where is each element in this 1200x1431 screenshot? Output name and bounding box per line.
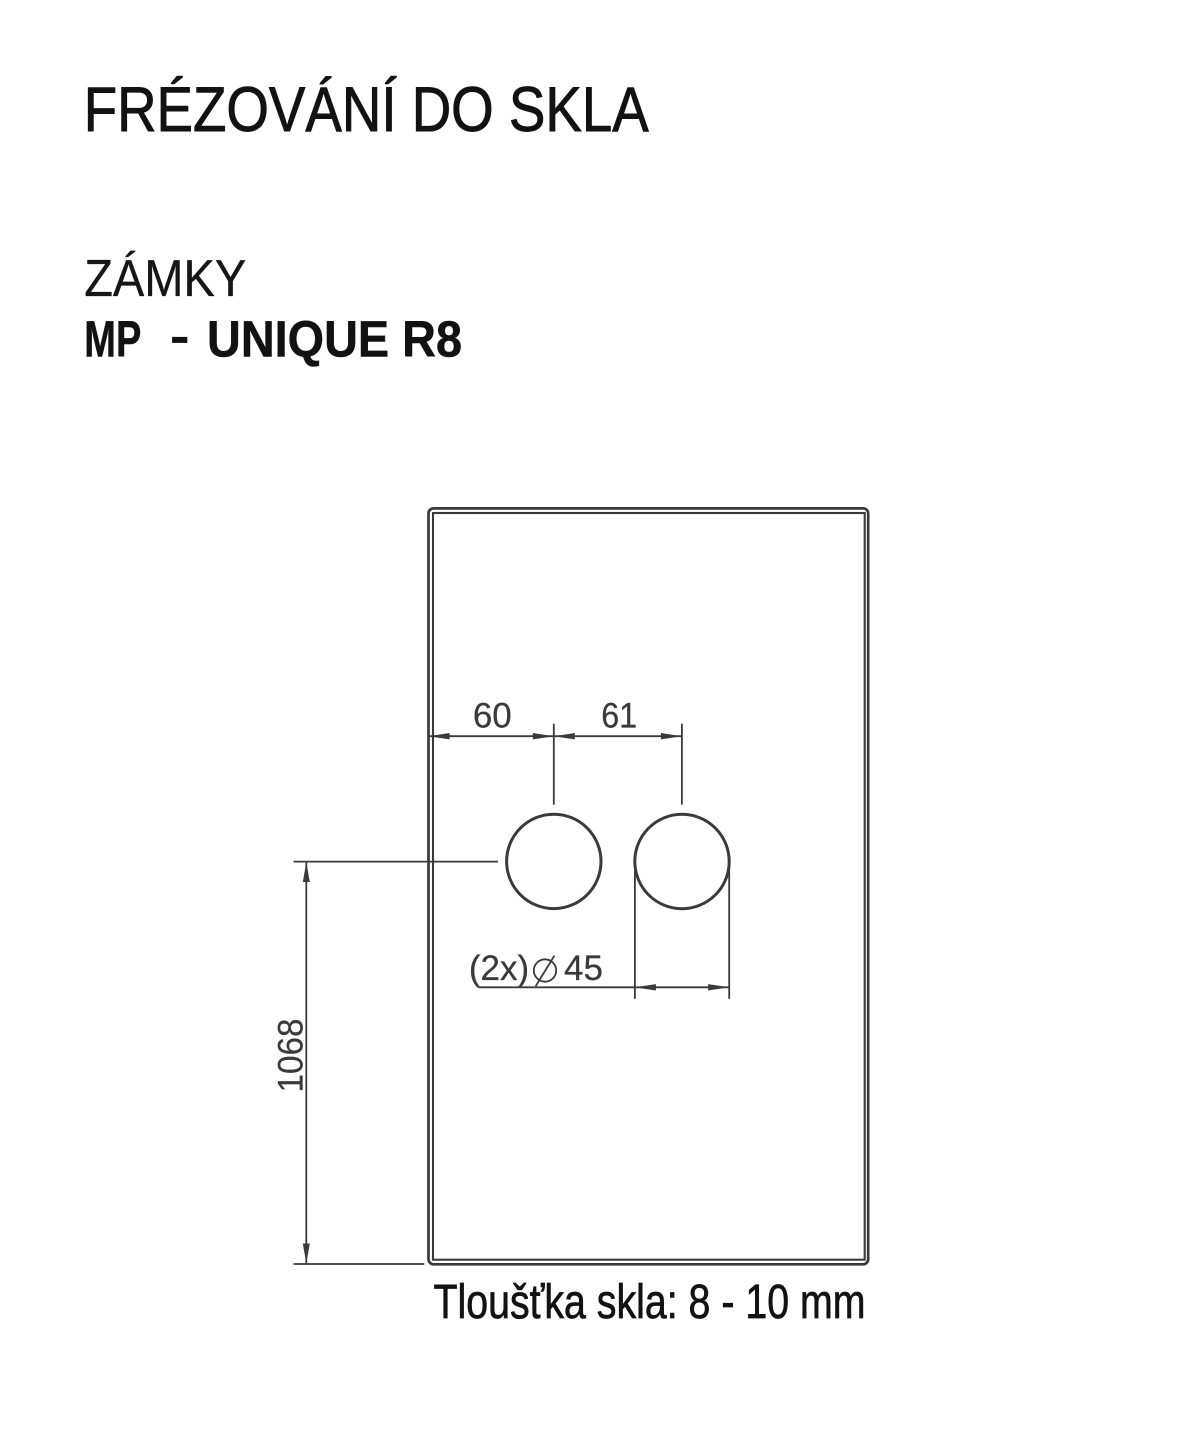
svg-text:60: 60 bbox=[473, 697, 512, 736]
svg-text:(2x): (2x) bbox=[469, 949, 529, 988]
svg-text:FRÉZOVÁNÍ DO SKLA: FRÉZOVÁNÍ DO SKLA bbox=[84, 75, 649, 145]
svg-text:Tloušťka skla: 8 - 10 mm: Tloušťka skla: 8 - 10 mm bbox=[434, 1276, 866, 1329]
svg-text:UNIQUE R8: UNIQUE R8 bbox=[207, 311, 462, 368]
svg-text:ZÁMKY: ZÁMKY bbox=[84, 250, 246, 308]
svg-text:MP: MP bbox=[84, 311, 141, 368]
svg-text:45: 45 bbox=[564, 949, 603, 988]
svg-text:61: 61 bbox=[601, 697, 637, 736]
svg-text:1068: 1068 bbox=[272, 1019, 311, 1093]
